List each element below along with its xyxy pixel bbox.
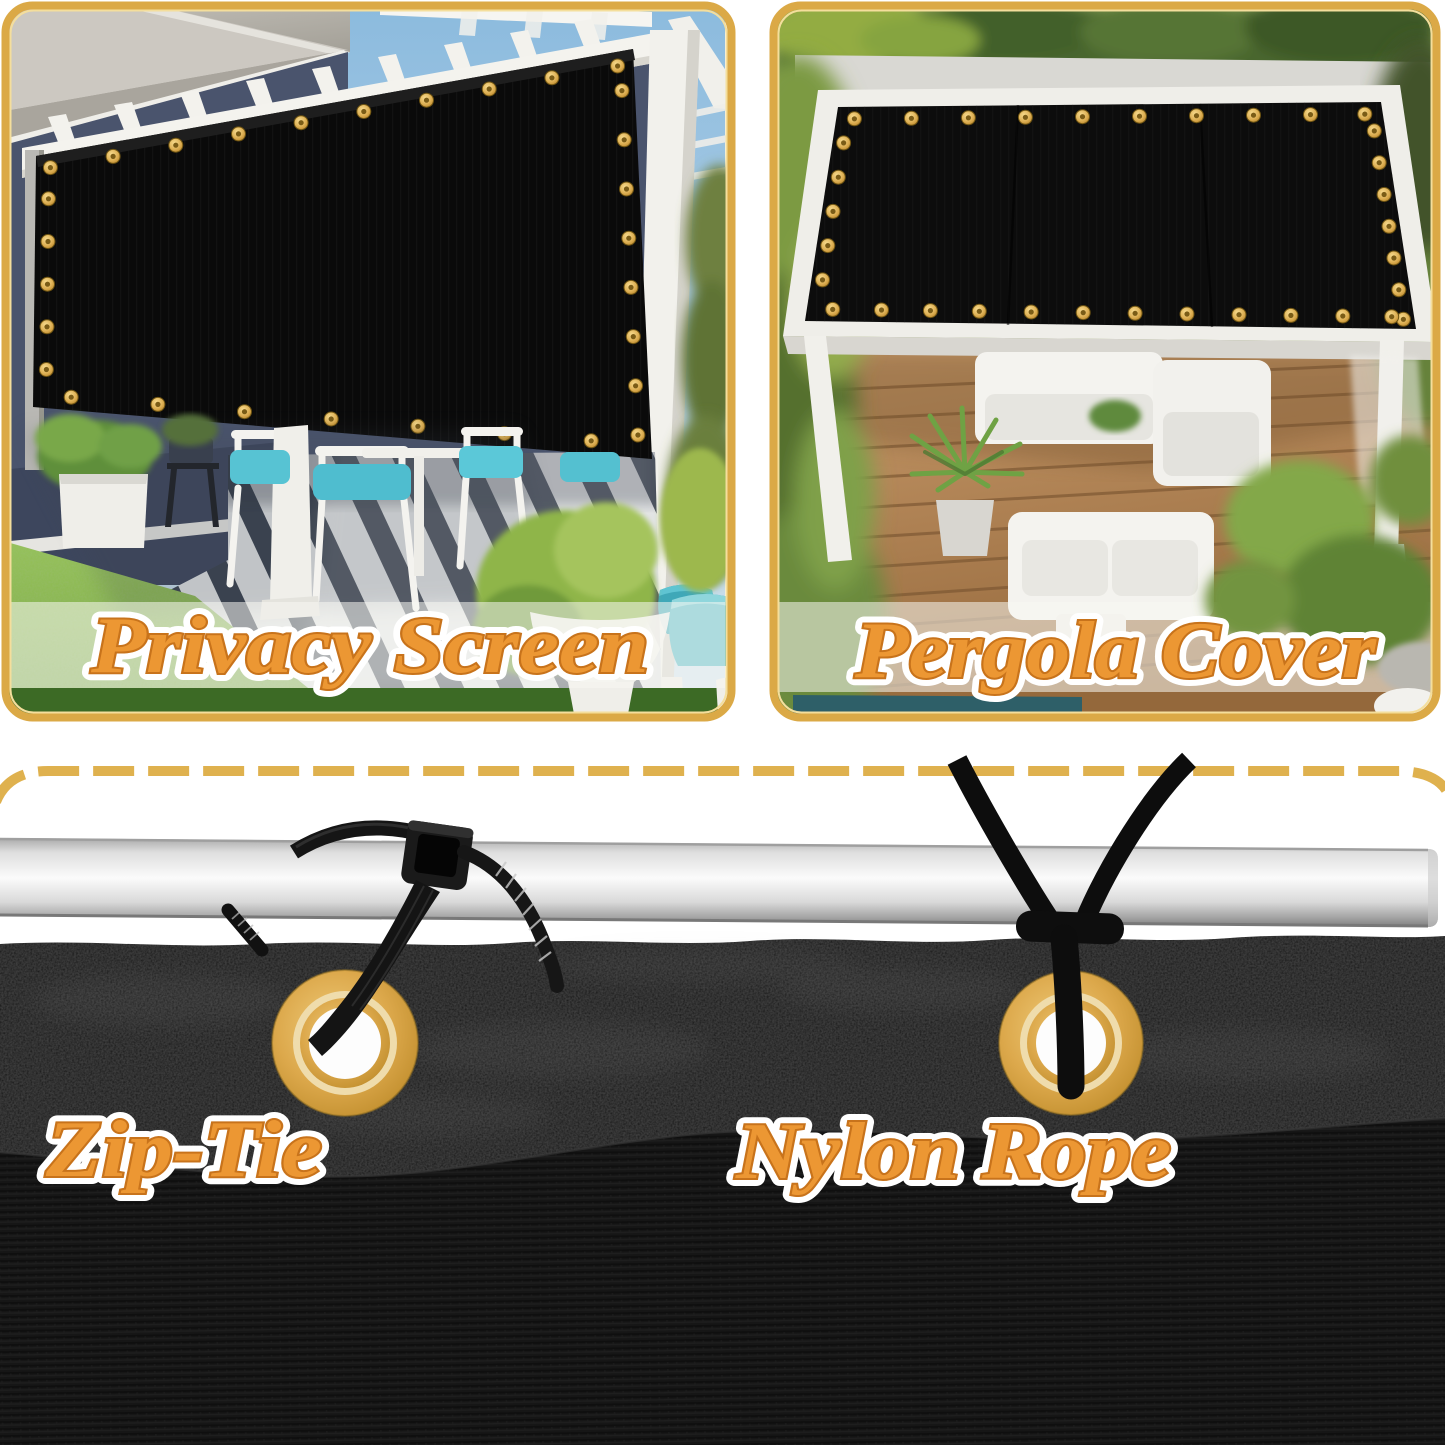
- svg-text:Zip-Tie: Zip-Tie: [45, 1106, 322, 1194]
- svg-text:Nylon Rope: Nylon Rope: [735, 1108, 1171, 1196]
- svg-text:Privacy Screen: Privacy Screen: [90, 602, 649, 690]
- svg-text:Pergola Cover: Pergola Cover: [854, 607, 1377, 695]
